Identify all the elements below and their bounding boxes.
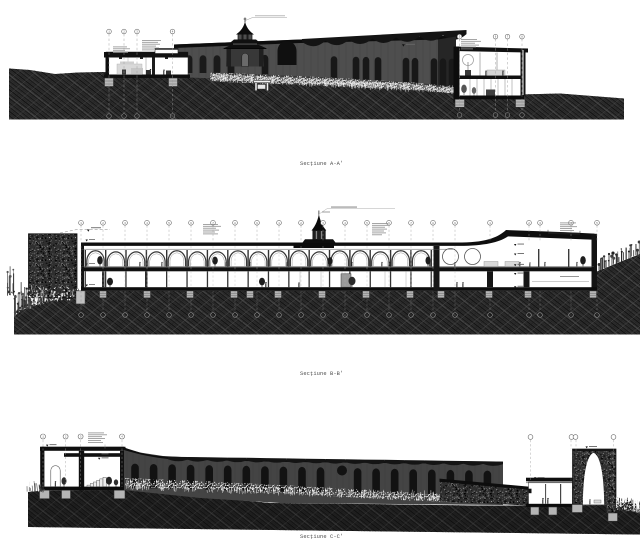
svg-text:Secțiune C-Cʹ: Secțiune C-Cʹ <box>300 534 343 540</box>
svg-text:Secțiune B-Bʹ: Secțiune B-Bʹ <box>300 371 343 377</box>
svg-text:Secțiune A-Aʹ: Secțiune A-Aʹ <box>300 161 343 167</box>
